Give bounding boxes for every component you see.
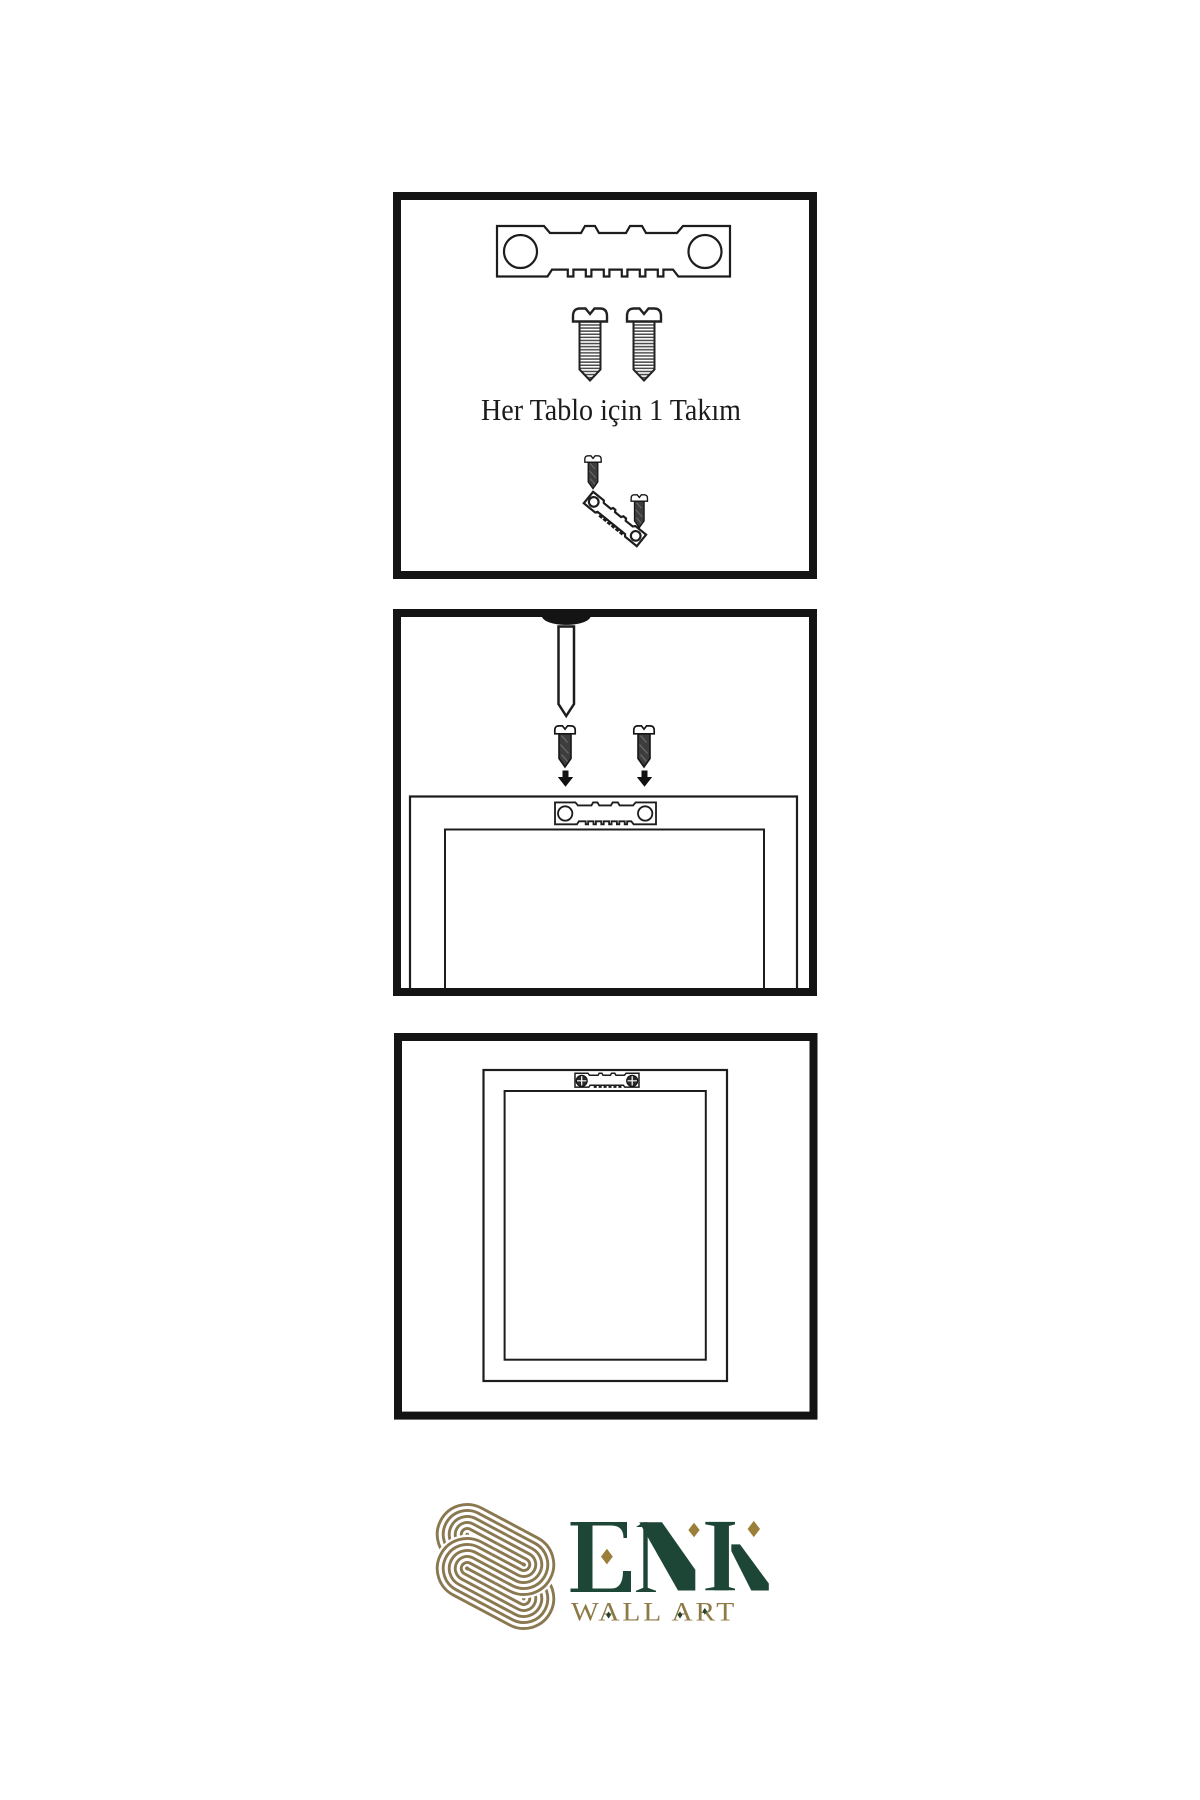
svg-text:WALL ART: WALL ART [571,1598,737,1627]
svg-text:Her Tablo için 1 Takım: Her Tablo için 1 Takım [481,392,741,427]
